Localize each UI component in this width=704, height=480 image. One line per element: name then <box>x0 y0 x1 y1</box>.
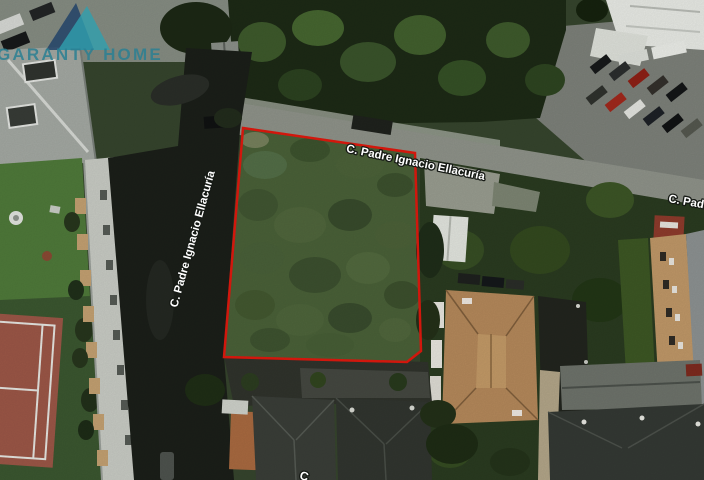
brand-name: GARANTY HOME <box>0 45 163 64</box>
aerial-map: C. Padre Ignacio Ellacuría C. Padre Igna… <box>0 0 704 480</box>
photo-grain <box>0 0 704 480</box>
